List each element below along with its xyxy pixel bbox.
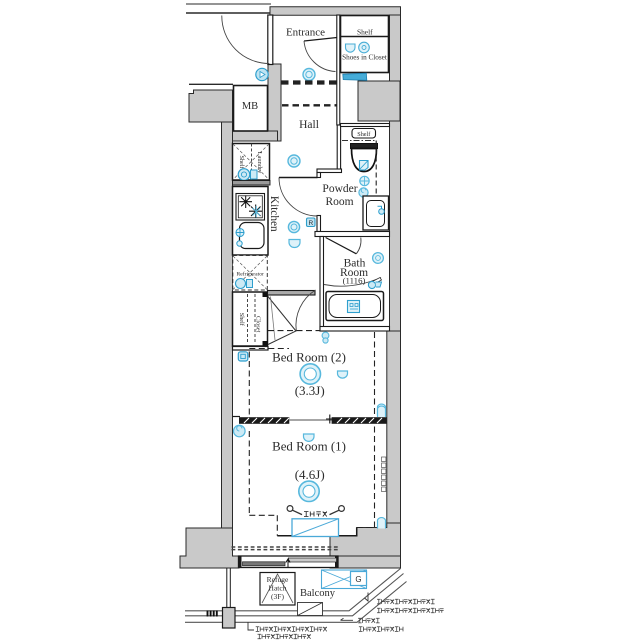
- svg-text:(4.6J): (4.6J): [295, 467, 325, 482]
- svg-text:Shoes in Closet: Shoes in Closet: [342, 53, 387, 61]
- svg-text:Shelf: Shelf: [357, 131, 371, 138]
- svg-text:(3.3J): (3.3J): [295, 383, 325, 398]
- svg-text:(1116): (1116): [343, 275, 366, 285]
- svg-text:G: G: [355, 575, 361, 584]
- svg-text:Shelf: Shelf: [238, 313, 245, 327]
- svg-text:Entrance: Entrance: [286, 26, 325, 38]
- svg-text:Shelf: Shelf: [238, 155, 245, 169]
- svg-text:Balcony: Balcony: [300, 588, 336, 599]
- svg-text:Powder: Powder: [322, 183, 357, 195]
- svg-text:Shelf: Shelf: [357, 27, 373, 36]
- svg-text:Refrigerator: Refrigerator: [237, 271, 264, 278]
- svg-text:(3F): (3F): [271, 592, 284, 601]
- svg-text:Hall: Hall: [299, 119, 319, 131]
- svg-text:MB: MB: [242, 101, 258, 112]
- svg-text:Closet: Closet: [255, 316, 262, 333]
- svg-text:Room: Room: [325, 196, 353, 208]
- svg-text:Kitchen: Kitchen: [268, 196, 280, 232]
- svg-text:R: R: [308, 220, 313, 227]
- svg-text:Bed Room (1): Bed Room (1): [272, 439, 346, 453]
- svg-text:Bed Room (2): Bed Room (2): [272, 350, 346, 364]
